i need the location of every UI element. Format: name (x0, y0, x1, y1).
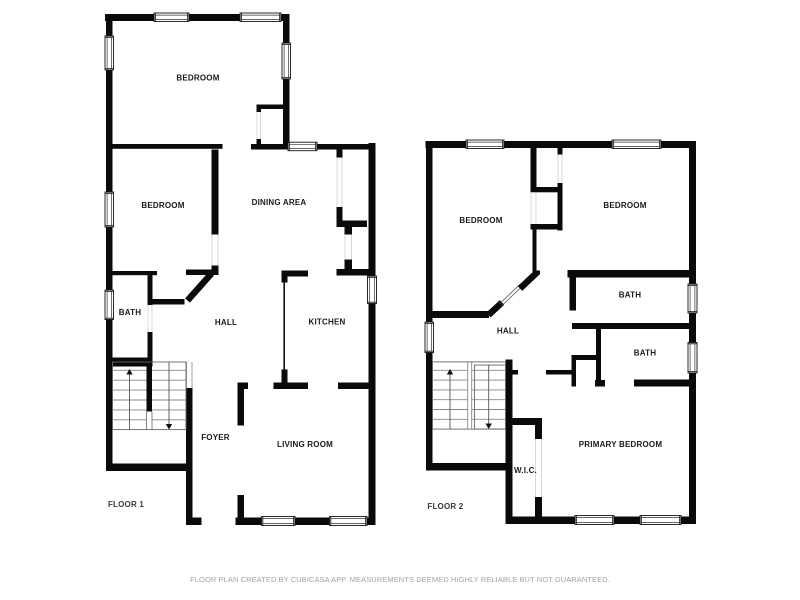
svg-text:LIVING ROOM: LIVING ROOM (277, 440, 333, 449)
svg-text:DINING AREA: DINING AREA (252, 198, 307, 207)
svg-text:HALL: HALL (497, 327, 519, 336)
svg-text:FLOOR 2: FLOOR 2 (427, 502, 463, 511)
svg-text:BEDROOM: BEDROOM (176, 74, 219, 83)
svg-text:FOYER: FOYER (201, 433, 230, 442)
svg-text:BEDROOM: BEDROOM (141, 201, 184, 210)
svg-text:BEDROOM: BEDROOM (459, 216, 502, 225)
svg-text:FLOOR PLAN CREATED BY CUBICASA: FLOOR PLAN CREATED BY CUBICASA APP. MEAS… (190, 575, 610, 584)
svg-text:PRIMARY BEDROOM: PRIMARY BEDROOM (579, 440, 663, 449)
svg-text:BATH: BATH (634, 349, 656, 358)
svg-text:KITCHEN: KITCHEN (309, 318, 346, 327)
svg-text:BATH: BATH (619, 291, 641, 300)
svg-text:BATH: BATH (119, 308, 141, 317)
svg-text:W.I.C.: W.I.C. (514, 466, 537, 475)
svg-text:HALL: HALL (215, 318, 237, 327)
svg-text:BEDROOM: BEDROOM (603, 201, 646, 210)
svg-text:FLOOR 1: FLOOR 1 (108, 500, 144, 509)
